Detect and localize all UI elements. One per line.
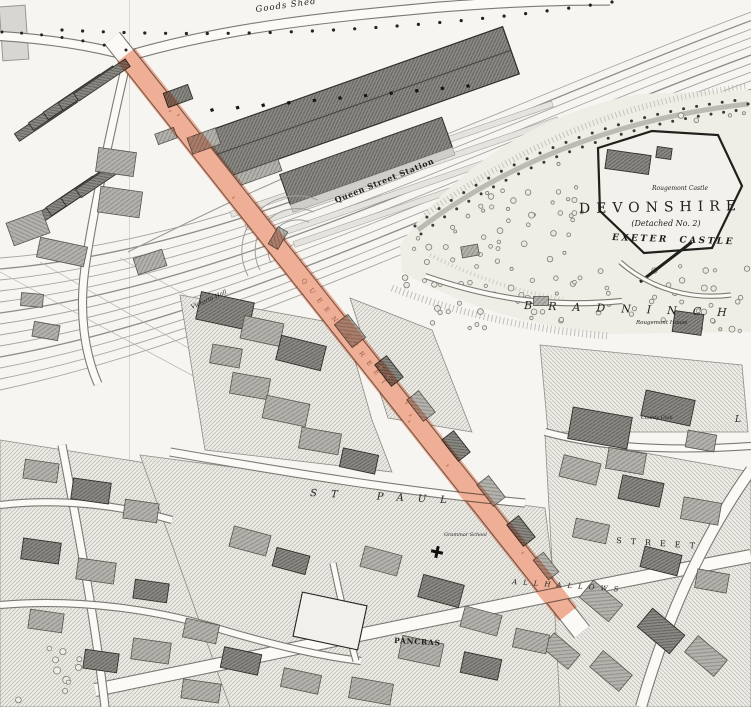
district-label-devonshire: DEVONSHIRE bbox=[579, 198, 742, 217]
historical-map: Goods Shed Queen Street Station DEVONSHI… bbox=[0, 0, 751, 707]
grammar-school-label: Grammar School bbox=[444, 532, 487, 538]
county-club-label: County Club bbox=[641, 415, 673, 421]
rougemont-house-label: Rougemont House bbox=[635, 320, 688, 326]
detached-note-label: (Detached No. 2) bbox=[631, 219, 700, 228]
map-canvas[interactable]: Goods Shed Queen Street Station DEVONSHI… bbox=[0, 0, 751, 707]
edge-letter: L bbox=[734, 415, 741, 425]
rougemont-castle-label: Rougemont Castle bbox=[651, 185, 708, 192]
